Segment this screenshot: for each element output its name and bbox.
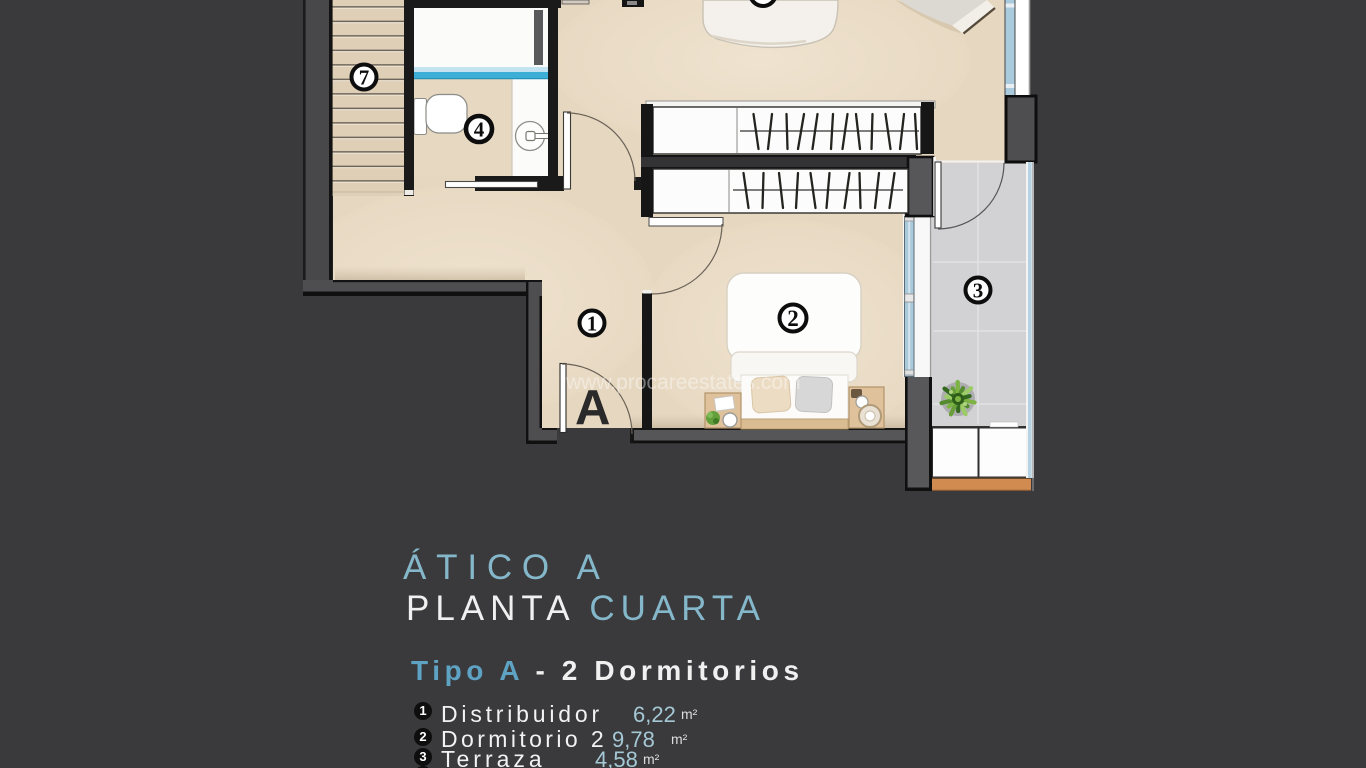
svg-text:2: 2	[787, 306, 799, 331]
svg-text:7: 7	[359, 66, 370, 90]
svg-text:1: 1	[587, 312, 598, 336]
svg-text:4: 4	[474, 118, 485, 142]
svg-text:3: 3	[973, 279, 984, 303]
